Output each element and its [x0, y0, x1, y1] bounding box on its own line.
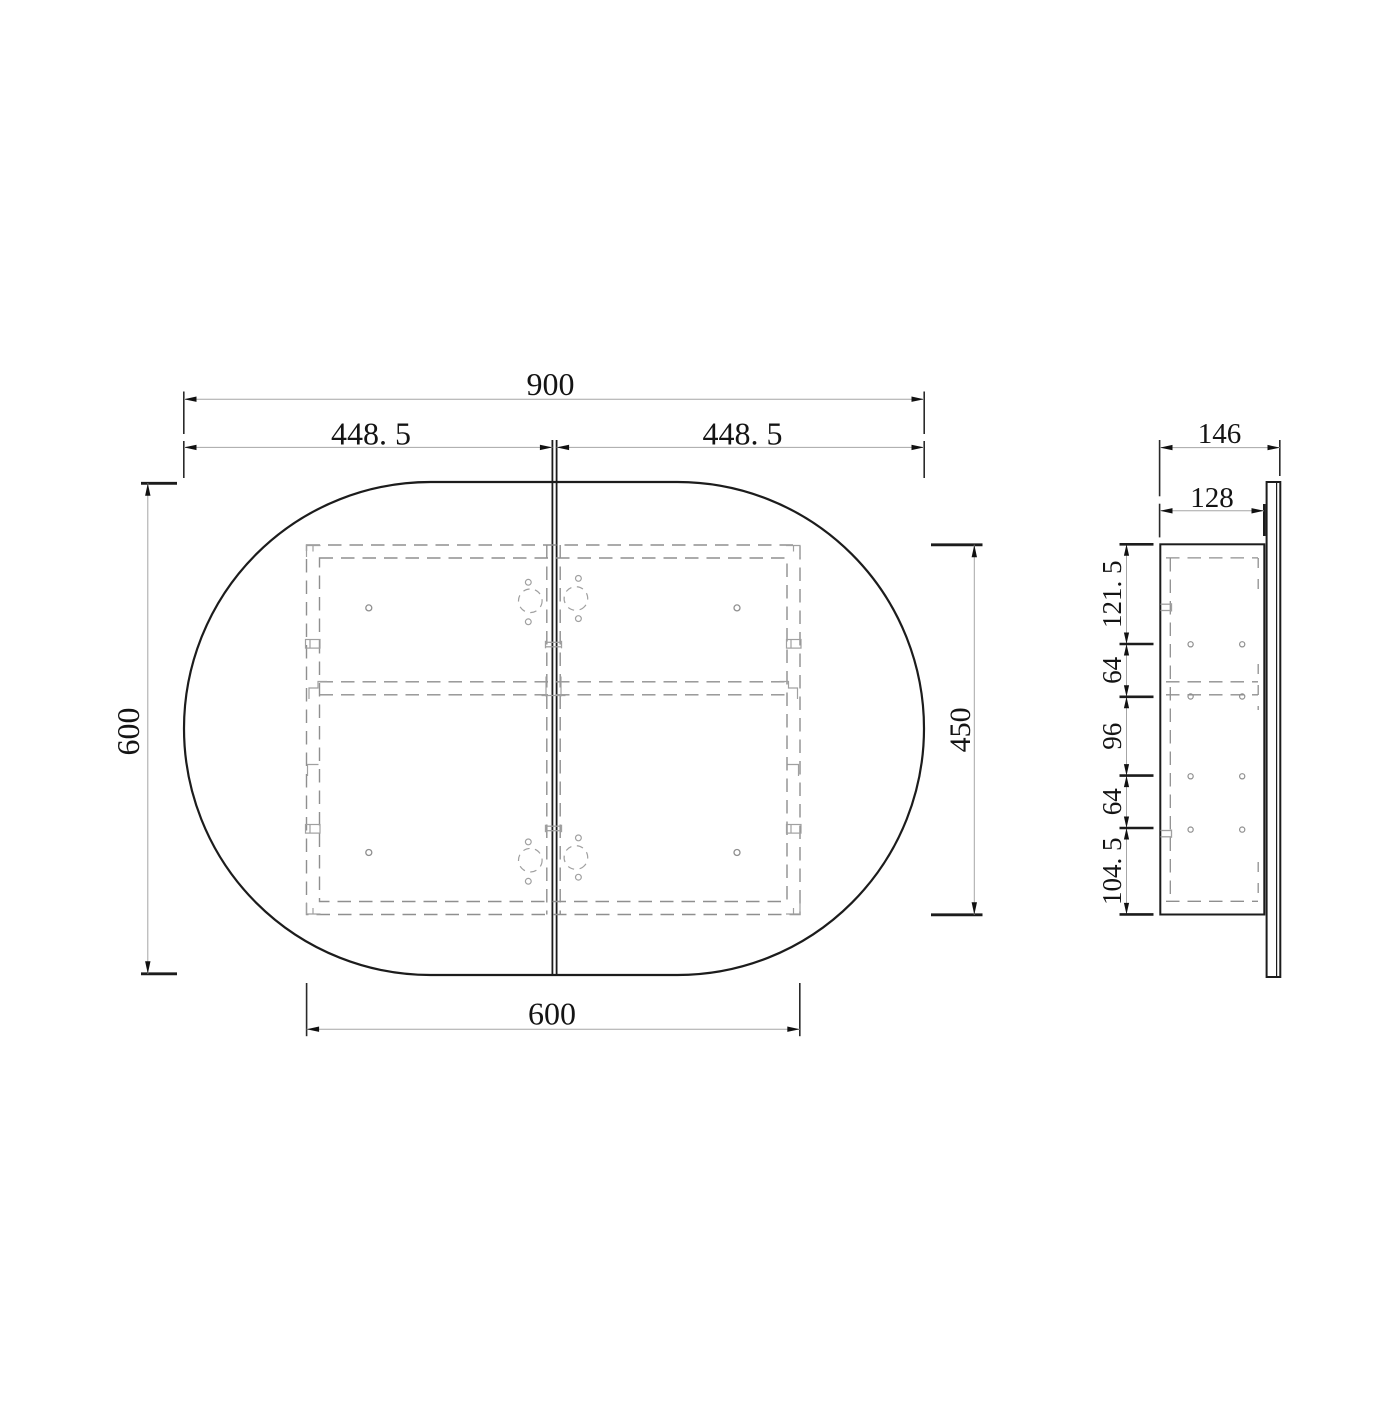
- svg-text:448. 5: 448. 5: [703, 415, 783, 451]
- svg-text:448. 5: 448. 5: [331, 415, 411, 451]
- svg-text:600: 600: [528, 996, 576, 1032]
- svg-text:450: 450: [944, 707, 977, 752]
- svg-text:96: 96: [1097, 723, 1127, 750]
- svg-text:64: 64: [1097, 656, 1127, 684]
- svg-text:128: 128: [1190, 482, 1234, 514]
- svg-text:121. 5: 121. 5: [1097, 560, 1127, 628]
- svg-text:146: 146: [1198, 418, 1242, 450]
- svg-text:900: 900: [527, 366, 575, 402]
- svg-text:104. 5: 104. 5: [1097, 837, 1127, 905]
- svg-text:600: 600: [110, 708, 146, 756]
- svg-text:64: 64: [1097, 788, 1127, 816]
